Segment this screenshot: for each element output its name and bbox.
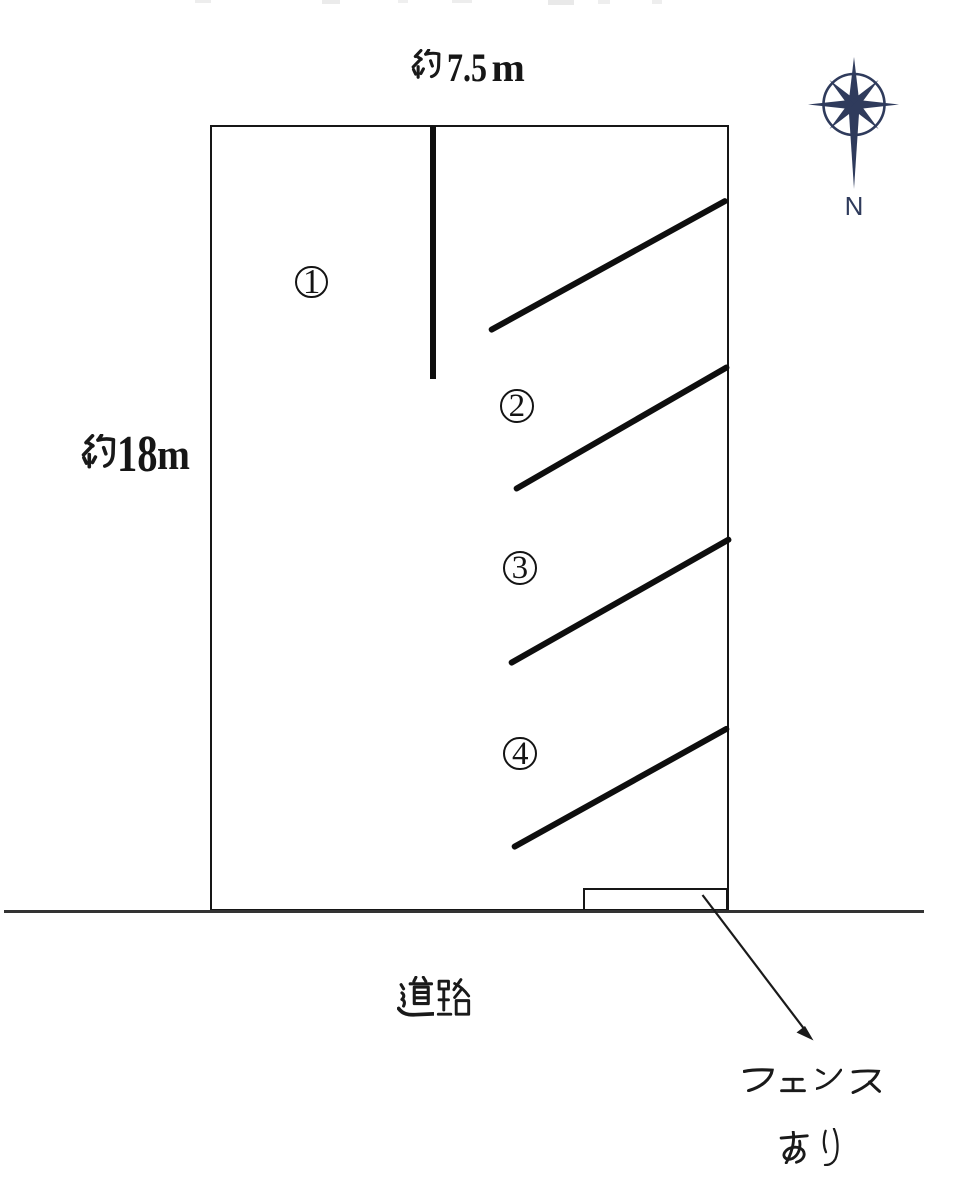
- svg-text:N: N: [845, 191, 864, 221]
